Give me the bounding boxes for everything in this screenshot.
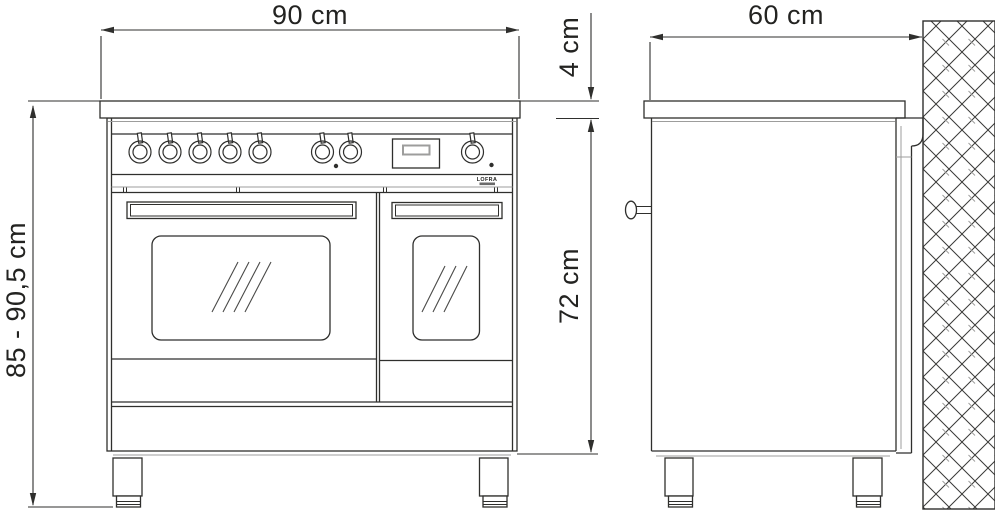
arrowhead-down-icon bbox=[30, 493, 36, 506]
front-worktop bbox=[100, 101, 520, 118]
wall-section-hatched bbox=[923, 21, 995, 509]
range-cooker-dimension-drawing: LOFRA bbox=[0, 0, 995, 512]
dimension-body-height-label: 72 cm bbox=[554, 248, 584, 324]
side-body bbox=[652, 118, 897, 451]
side-view bbox=[626, 21, 995, 509]
dimension-overall-height: 85 - 90,5 cm bbox=[1, 101, 113, 507]
front-left-foot bbox=[113, 458, 142, 507]
arrowhead-up-icon bbox=[30, 105, 36, 118]
brand-logo-text: LOFRA bbox=[477, 177, 498, 183]
side-worktop bbox=[644, 101, 905, 118]
dimension-depth-60: 60 cm bbox=[650, 0, 922, 100]
dimension-overall-height-label: 85 - 90,5 cm bbox=[1, 222, 31, 378]
indicator-light-1 bbox=[334, 164, 338, 168]
brand-logo-subline bbox=[480, 183, 496, 186]
arrowhead-left-icon bbox=[101, 27, 114, 33]
dimension-worktop-4: 4 cm bbox=[520, 13, 599, 119]
front-body bbox=[107, 118, 517, 451]
indicator-light-2 bbox=[489, 163, 493, 167]
arrowhead-up-icon bbox=[588, 119, 594, 132]
brand-logo: LOFRA bbox=[477, 177, 498, 185]
dimension-body-height-72: 72 cm bbox=[554, 119, 594, 453]
front-view: LOFRA bbox=[100, 101, 598, 507]
dimension-width-label: 90 cm bbox=[272, 0, 348, 30]
arrowhead-down-icon bbox=[588, 87, 594, 100]
arrowhead-down-icon bbox=[588, 440, 594, 453]
rear-spacer-bracket bbox=[896, 118, 923, 453]
side-front-foot bbox=[665, 458, 693, 507]
dimension-width-90: 90 cm bbox=[101, 0, 519, 99]
side-door-handle bbox=[626, 201, 652, 219]
arrowhead-right-icon bbox=[506, 27, 519, 33]
dimension-depth-label: 60 cm bbox=[748, 0, 824, 30]
front-right-foot bbox=[480, 458, 509, 507]
arrowhead-right-icon bbox=[909, 34, 922, 40]
drawing-svg: LOFRA bbox=[0, 0, 995, 512]
arrowhead-left-icon bbox=[650, 34, 663, 40]
side-rear-foot bbox=[853, 458, 882, 507]
dimension-worktop-label: 4 cm bbox=[554, 17, 584, 78]
